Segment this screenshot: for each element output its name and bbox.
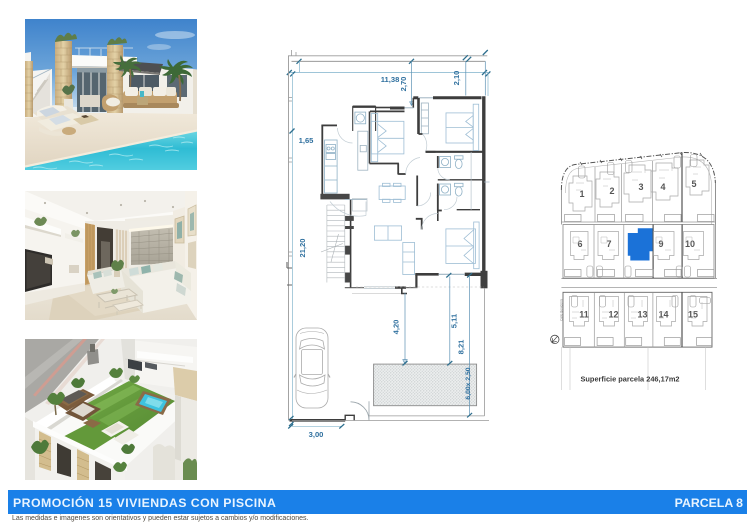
- svg-text:Calle Benidorm: Calle Benidorm: [560, 299, 564, 321]
- svg-text:3,00: 3,00: [309, 430, 324, 439]
- svg-text:Superficie parcela 246,17m2: Superficie parcela 246,17m2: [580, 375, 679, 384]
- svg-text:13: 13: [637, 310, 647, 320]
- svg-text:2,70: 2,70: [399, 77, 408, 92]
- svg-text:4: 4: [660, 182, 665, 192]
- svg-text:2,10: 2,10: [452, 71, 461, 86]
- svg-text:21,20: 21,20: [298, 238, 307, 257]
- svg-text:5,11: 5,11: [450, 313, 459, 328]
- svg-text:2: 2: [609, 186, 614, 196]
- svg-text:12: 12: [608, 310, 618, 320]
- svg-text:11: 11: [579, 310, 589, 320]
- svg-text:1,65: 1,65: [299, 136, 315, 145]
- svg-text:9: 9: [658, 239, 663, 249]
- svg-text:4,20: 4,20: [392, 320, 401, 335]
- svg-text:1: 1: [579, 189, 584, 199]
- svg-text:6,00x 2,50: 6,00x 2,50: [465, 367, 472, 399]
- svg-text:10: 10: [685, 239, 695, 249]
- svg-text:5: 5: [691, 179, 696, 189]
- svg-text:11,38: 11,38: [381, 75, 400, 84]
- svg-text:8,21: 8,21: [457, 339, 466, 355]
- svg-text:6: 6: [577, 239, 582, 249]
- svg-text:3: 3: [638, 182, 643, 192]
